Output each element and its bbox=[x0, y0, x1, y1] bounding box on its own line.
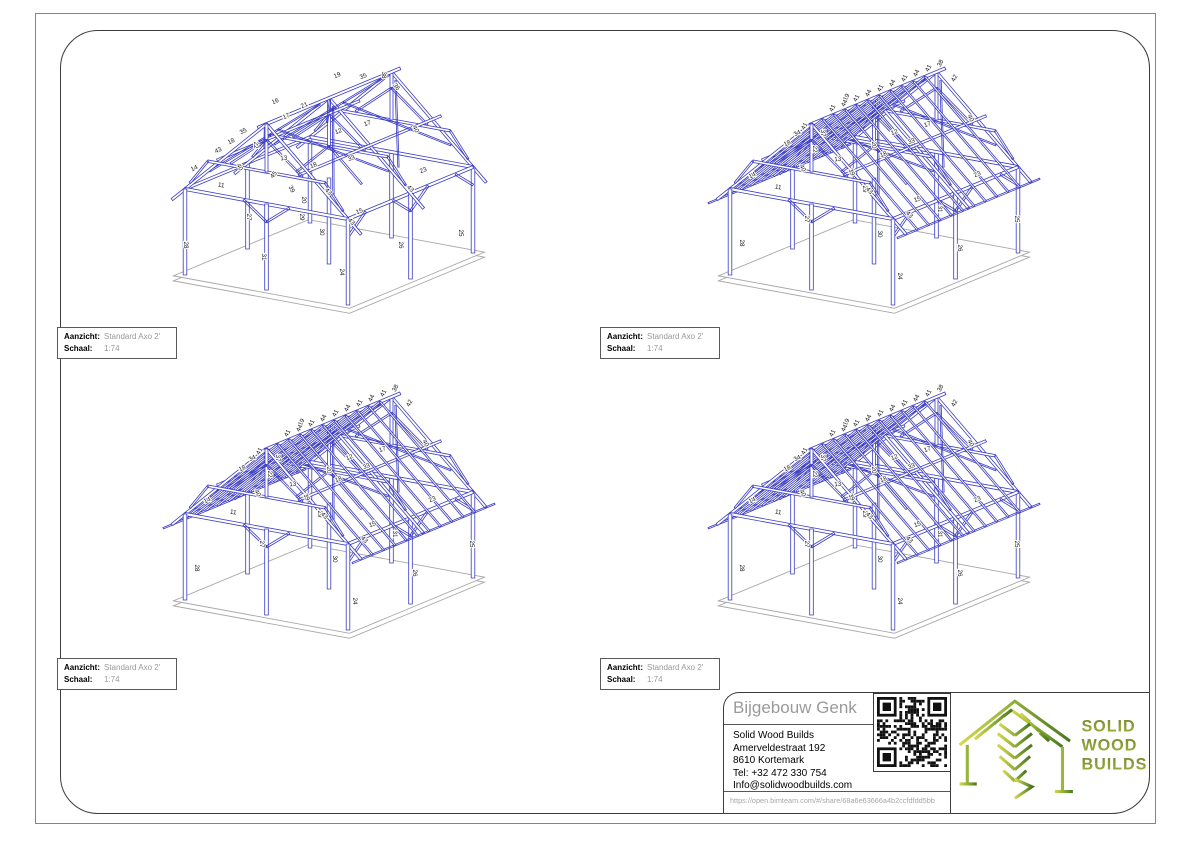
divider bbox=[724, 791, 950, 792]
address-line-1: Amerveldestraat 192 bbox=[733, 743, 852, 756]
logo-word-wood: WOOD bbox=[1081, 737, 1137, 755]
title-block: Bijgebouw Genk Solid Wood Builds Amervel… bbox=[723, 692, 1149, 813]
title-block-info: Bijgebouw Genk Solid Wood Builds Amervel… bbox=[724, 693, 951, 813]
company-contact: Solid Wood Builds Amerveldestraat 192 86… bbox=[733, 730, 852, 793]
logo-word-builds: BUILDS bbox=[1081, 756, 1147, 774]
project-title: Bijgebouw Genk bbox=[733, 698, 857, 718]
share-url[interactable]: https://open.bimteam.com/#/share/68a6e63… bbox=[730, 796, 935, 805]
phone-number: Tel: +32 472 330 754 bbox=[733, 768, 852, 781]
logo-house-icon bbox=[959, 701, 1072, 798]
logo-text: SOLID WOOD BUILDS bbox=[1081, 718, 1147, 774]
qr-code-image bbox=[877, 697, 947, 767]
divider bbox=[724, 724, 873, 725]
company-name: Solid Wood Builds bbox=[733, 730, 852, 743]
address-line-2: 8610 Kortemark bbox=[733, 755, 852, 768]
solid-wood-builds-logo: SOLID WOOD BUILDS bbox=[951, 692, 1151, 810]
qr-code bbox=[873, 693, 951, 772]
logo-word-solid: SOLID bbox=[1081, 718, 1135, 736]
drawing-sheet-page: 1418354322401617211935383612171318334039… bbox=[0, 0, 1190, 841]
title-block-layer: Bijgebouw Genk Solid Wood Builds Amervel… bbox=[60, 30, 1150, 814]
company-logo: SOLID WOOD BUILDS bbox=[952, 693, 1149, 813]
